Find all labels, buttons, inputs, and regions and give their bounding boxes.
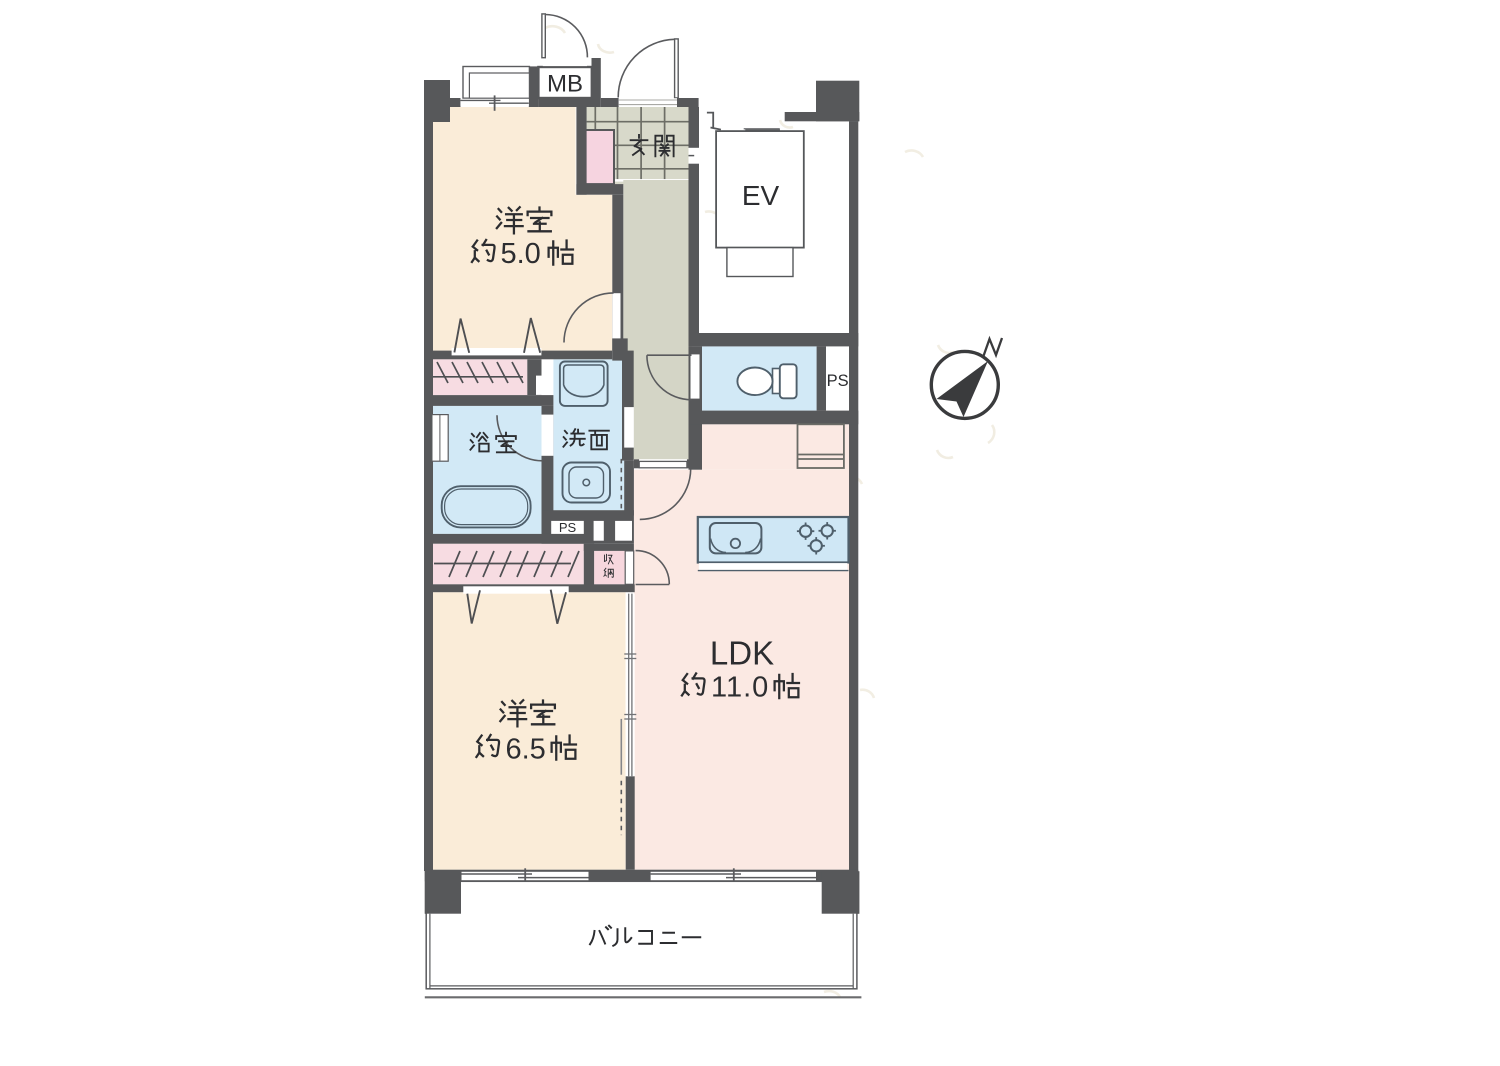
svg-text:EV: EV [742,180,780,211]
svg-text:6.5: 6.5 [506,734,546,766]
svg-text:11.0: 11.0 [711,672,769,704]
svg-text:MB: MB [547,71,583,98]
svg-text:LDK: LDK [710,635,774,672]
svg-text:PS: PS [827,372,849,390]
svg-text:PS: PS [559,520,577,535]
svg-text:5.0: 5.0 [501,238,541,270]
